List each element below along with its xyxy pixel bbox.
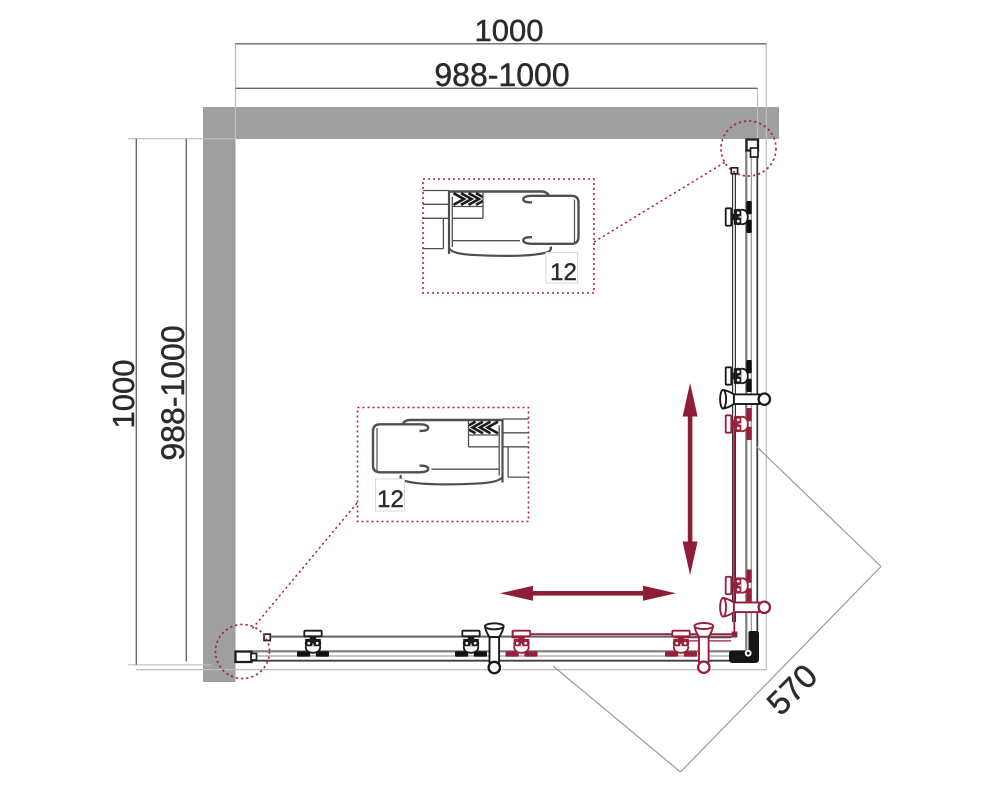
svg-text:1000: 1000 (106, 360, 141, 429)
svg-text:12: 12 (377, 486, 404, 513)
svg-text:988-1000: 988-1000 (155, 325, 191, 460)
svg-text:12: 12 (550, 259, 577, 286)
svg-text:988-1000: 988-1000 (434, 57, 569, 93)
svg-text:1000: 1000 (475, 13, 544, 48)
